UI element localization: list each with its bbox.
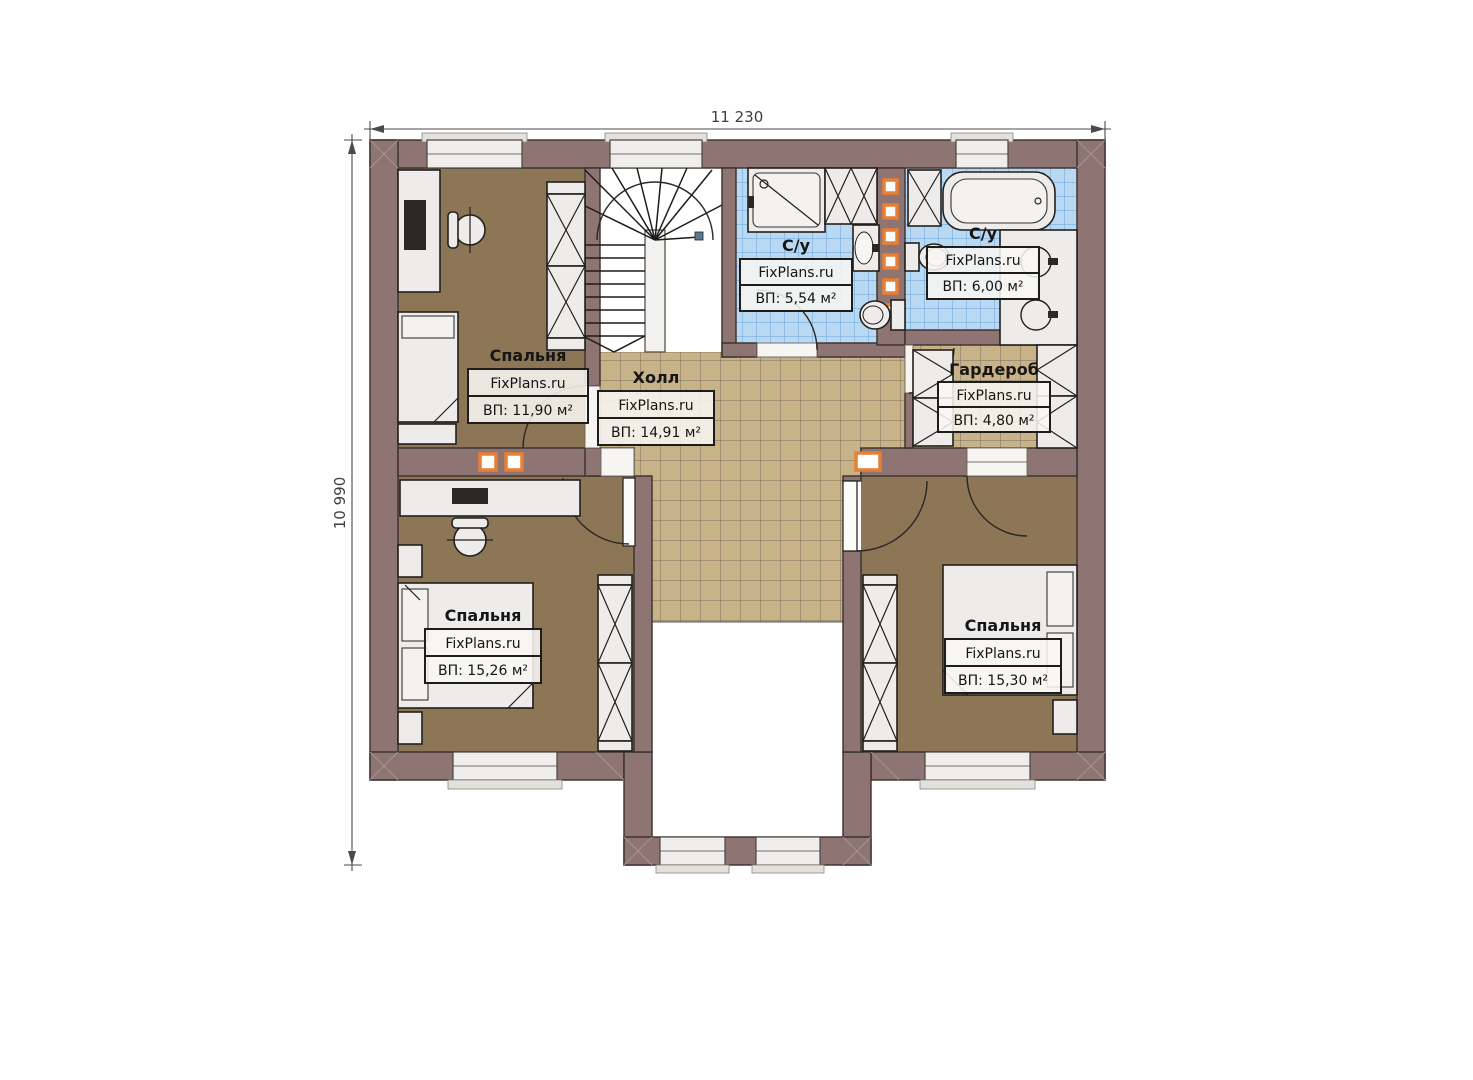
window-top-2 [605,133,707,168]
stair-spine [645,230,665,352]
window-bay-1 [656,837,729,873]
window-top-1 [422,133,527,168]
watermark-text: FixPlans.ru [758,265,833,281]
room-name: Спальня [445,606,522,625]
area-text: ВП: 4,80 м² [953,413,1034,429]
window-bottom-right-bedroom [920,752,1035,789]
bathtub-icon [943,172,1055,230]
bed-single-icon [398,312,458,444]
dimension-height-label: 10 990 [331,477,349,530]
wall-left [370,140,398,780]
void-open-to-below [652,622,843,837]
wall-stair-right [722,168,736,357]
watermark-text: FixPlans.ru [490,376,565,392]
watermark-text: FixPlans.ru [445,636,520,652]
wardrobe-cabinet-icon [547,182,585,350]
stair-newel-post [695,232,703,240]
wardrobe-cabinet-icon-2 [598,575,632,751]
wall-bath-left-stub [722,343,757,357]
wardrobe-cabinet-icon-3 [863,575,897,751]
window-bay-2 [752,837,824,873]
watermark-text: FixPlans.ru [965,646,1040,662]
dimension-width-label: 11 230 [711,108,764,126]
desk-icon-2 [400,480,580,516]
wall-wardrobe-left [905,393,913,448]
area-text: ВП: 5,54 м² [755,291,836,307]
room-name: Гардероб [949,360,1039,379]
wall-right [1077,140,1105,780]
room-label-wardrobe: Гардероб FixPlans.ru ВП: 4,80 м² [938,360,1050,432]
room-name: Холл [633,368,680,387]
monitor-icon [404,200,426,250]
window-top-3 [951,133,1013,168]
sink-icon [853,225,879,271]
watermark-text: FixPlans.ru [618,398,693,414]
watermark-text: FixPlans.ru [956,388,1031,404]
window-bottom-left-bedroom [448,752,562,789]
wall-corridor-right [843,551,861,752]
nightstand-icon-3 [1053,700,1077,734]
area-text: ВП: 14,91 м² [611,425,701,441]
floor-plan-page: Спальня FixPlans.ru ВП: 11,90 м² Холл Fi… [0,0,1473,1080]
area-text: ВП: 6,00 м² [942,279,1023,295]
toilet-icon-left [860,300,905,330]
wall-divider-left [398,448,601,476]
wall-corridor-left [634,476,652,752]
nightstand-icon [398,545,422,577]
room-name: Спальня [490,346,567,365]
area-text: ВП: 15,26 м² [438,663,528,679]
nightstand-icon-2 [398,712,422,744]
room-name: Спальня [965,616,1042,635]
room-name: С/у [782,236,811,255]
wall-corridor-right-stub [843,476,861,481]
room-name: С/у [969,224,998,243]
bath-shelf-icon-2 [908,170,941,226]
watermark-text: FixPlans.ru [945,253,1020,269]
floor-plan-drawing: Спальня FixPlans.ru ВП: 11,90 м² Холл Fi… [0,0,1473,1080]
bath-shelf-icon [825,168,877,224]
area-text: ВП: 11,90 м² [483,403,573,419]
area-text: ВП: 15,30 м² [958,673,1048,689]
wall-bedroom1-right [585,168,600,386]
shower-icon [748,168,825,232]
